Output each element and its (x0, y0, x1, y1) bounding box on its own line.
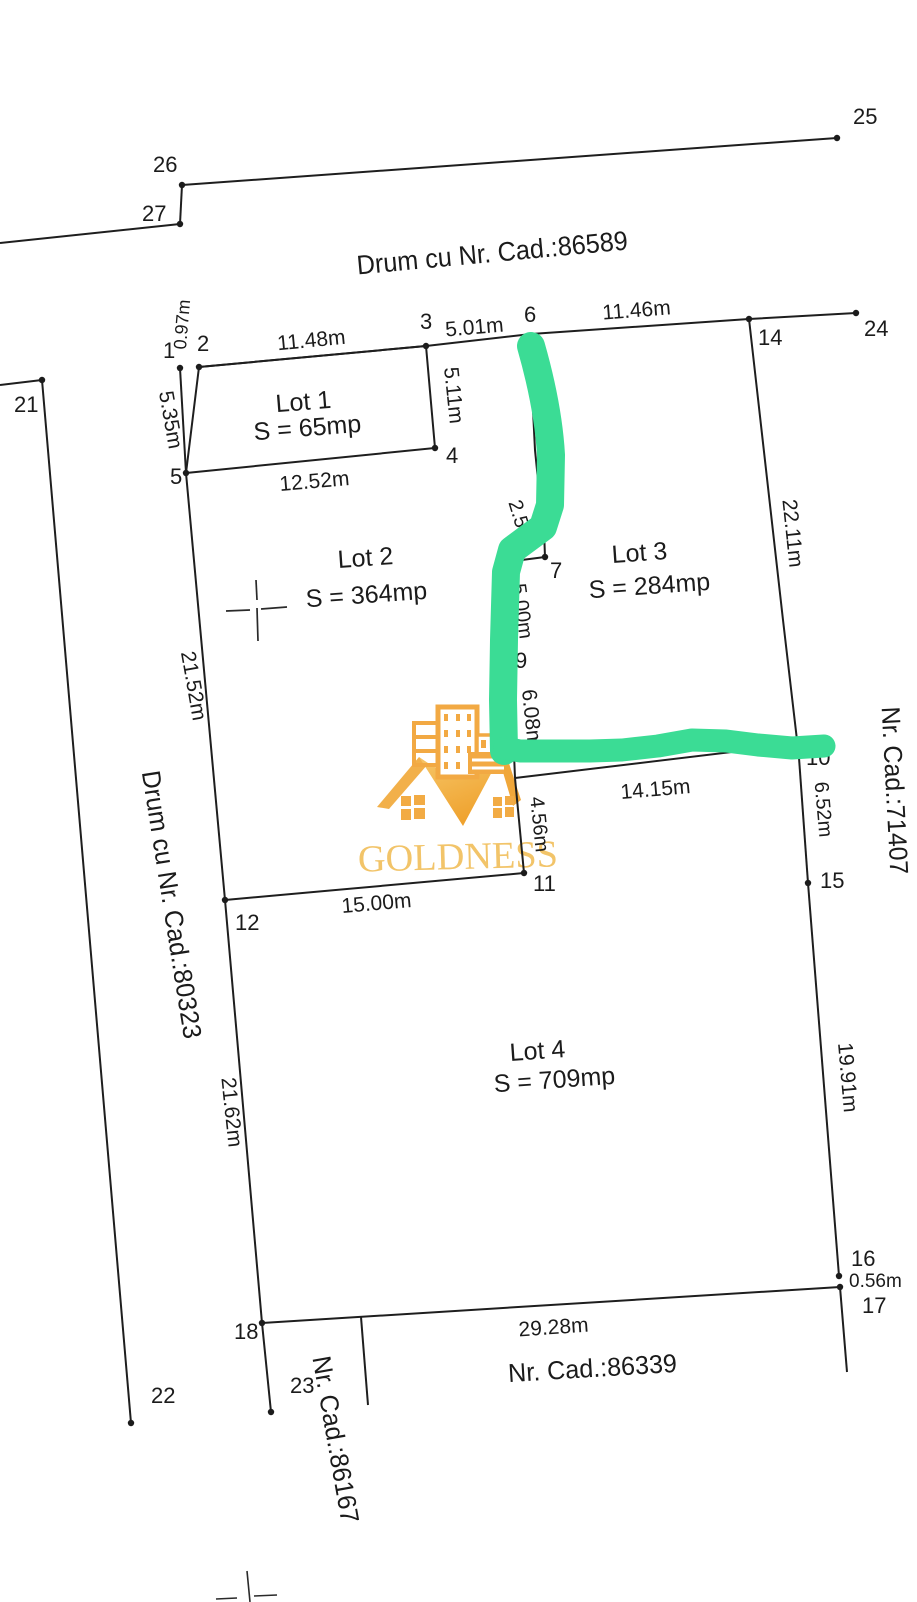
svg-text:24: 24 (864, 316, 888, 341)
svg-text:27: 27 (142, 201, 166, 226)
svg-text:29.28m: 29.28m (518, 1314, 589, 1342)
svg-text:4: 4 (446, 443, 458, 468)
svg-text:Lot 3: Lot 3 (611, 537, 668, 569)
svg-text:12: 12 (235, 910, 259, 935)
svg-text:18: 18 (234, 1319, 258, 1344)
svg-text:Lot 4: Lot 4 (509, 1035, 567, 1067)
svg-text:7: 7 (550, 558, 562, 583)
svg-text:14: 14 (758, 325, 782, 350)
svg-text:26: 26 (153, 152, 177, 177)
svg-text:3: 3 (420, 309, 432, 334)
svg-text:15: 15 (820, 868, 844, 893)
svg-text:17: 17 (862, 1293, 886, 1318)
svg-text:0.56m: 0.56m (849, 1271, 902, 1292)
svg-text:5: 5 (170, 464, 182, 489)
svg-text:6: 6 (524, 302, 536, 327)
svg-text:11: 11 (533, 871, 556, 896)
svg-text:16: 16 (851, 1246, 875, 1271)
svg-text:21: 21 (14, 392, 38, 417)
svg-text:GOLDNESS: GOLDNESS (357, 833, 558, 880)
svg-text:25: 25 (853, 104, 877, 129)
svg-text:22: 22 (151, 1383, 175, 1408)
svg-text:Lot 2: Lot 2 (337, 542, 394, 574)
svg-text:2: 2 (197, 331, 209, 356)
